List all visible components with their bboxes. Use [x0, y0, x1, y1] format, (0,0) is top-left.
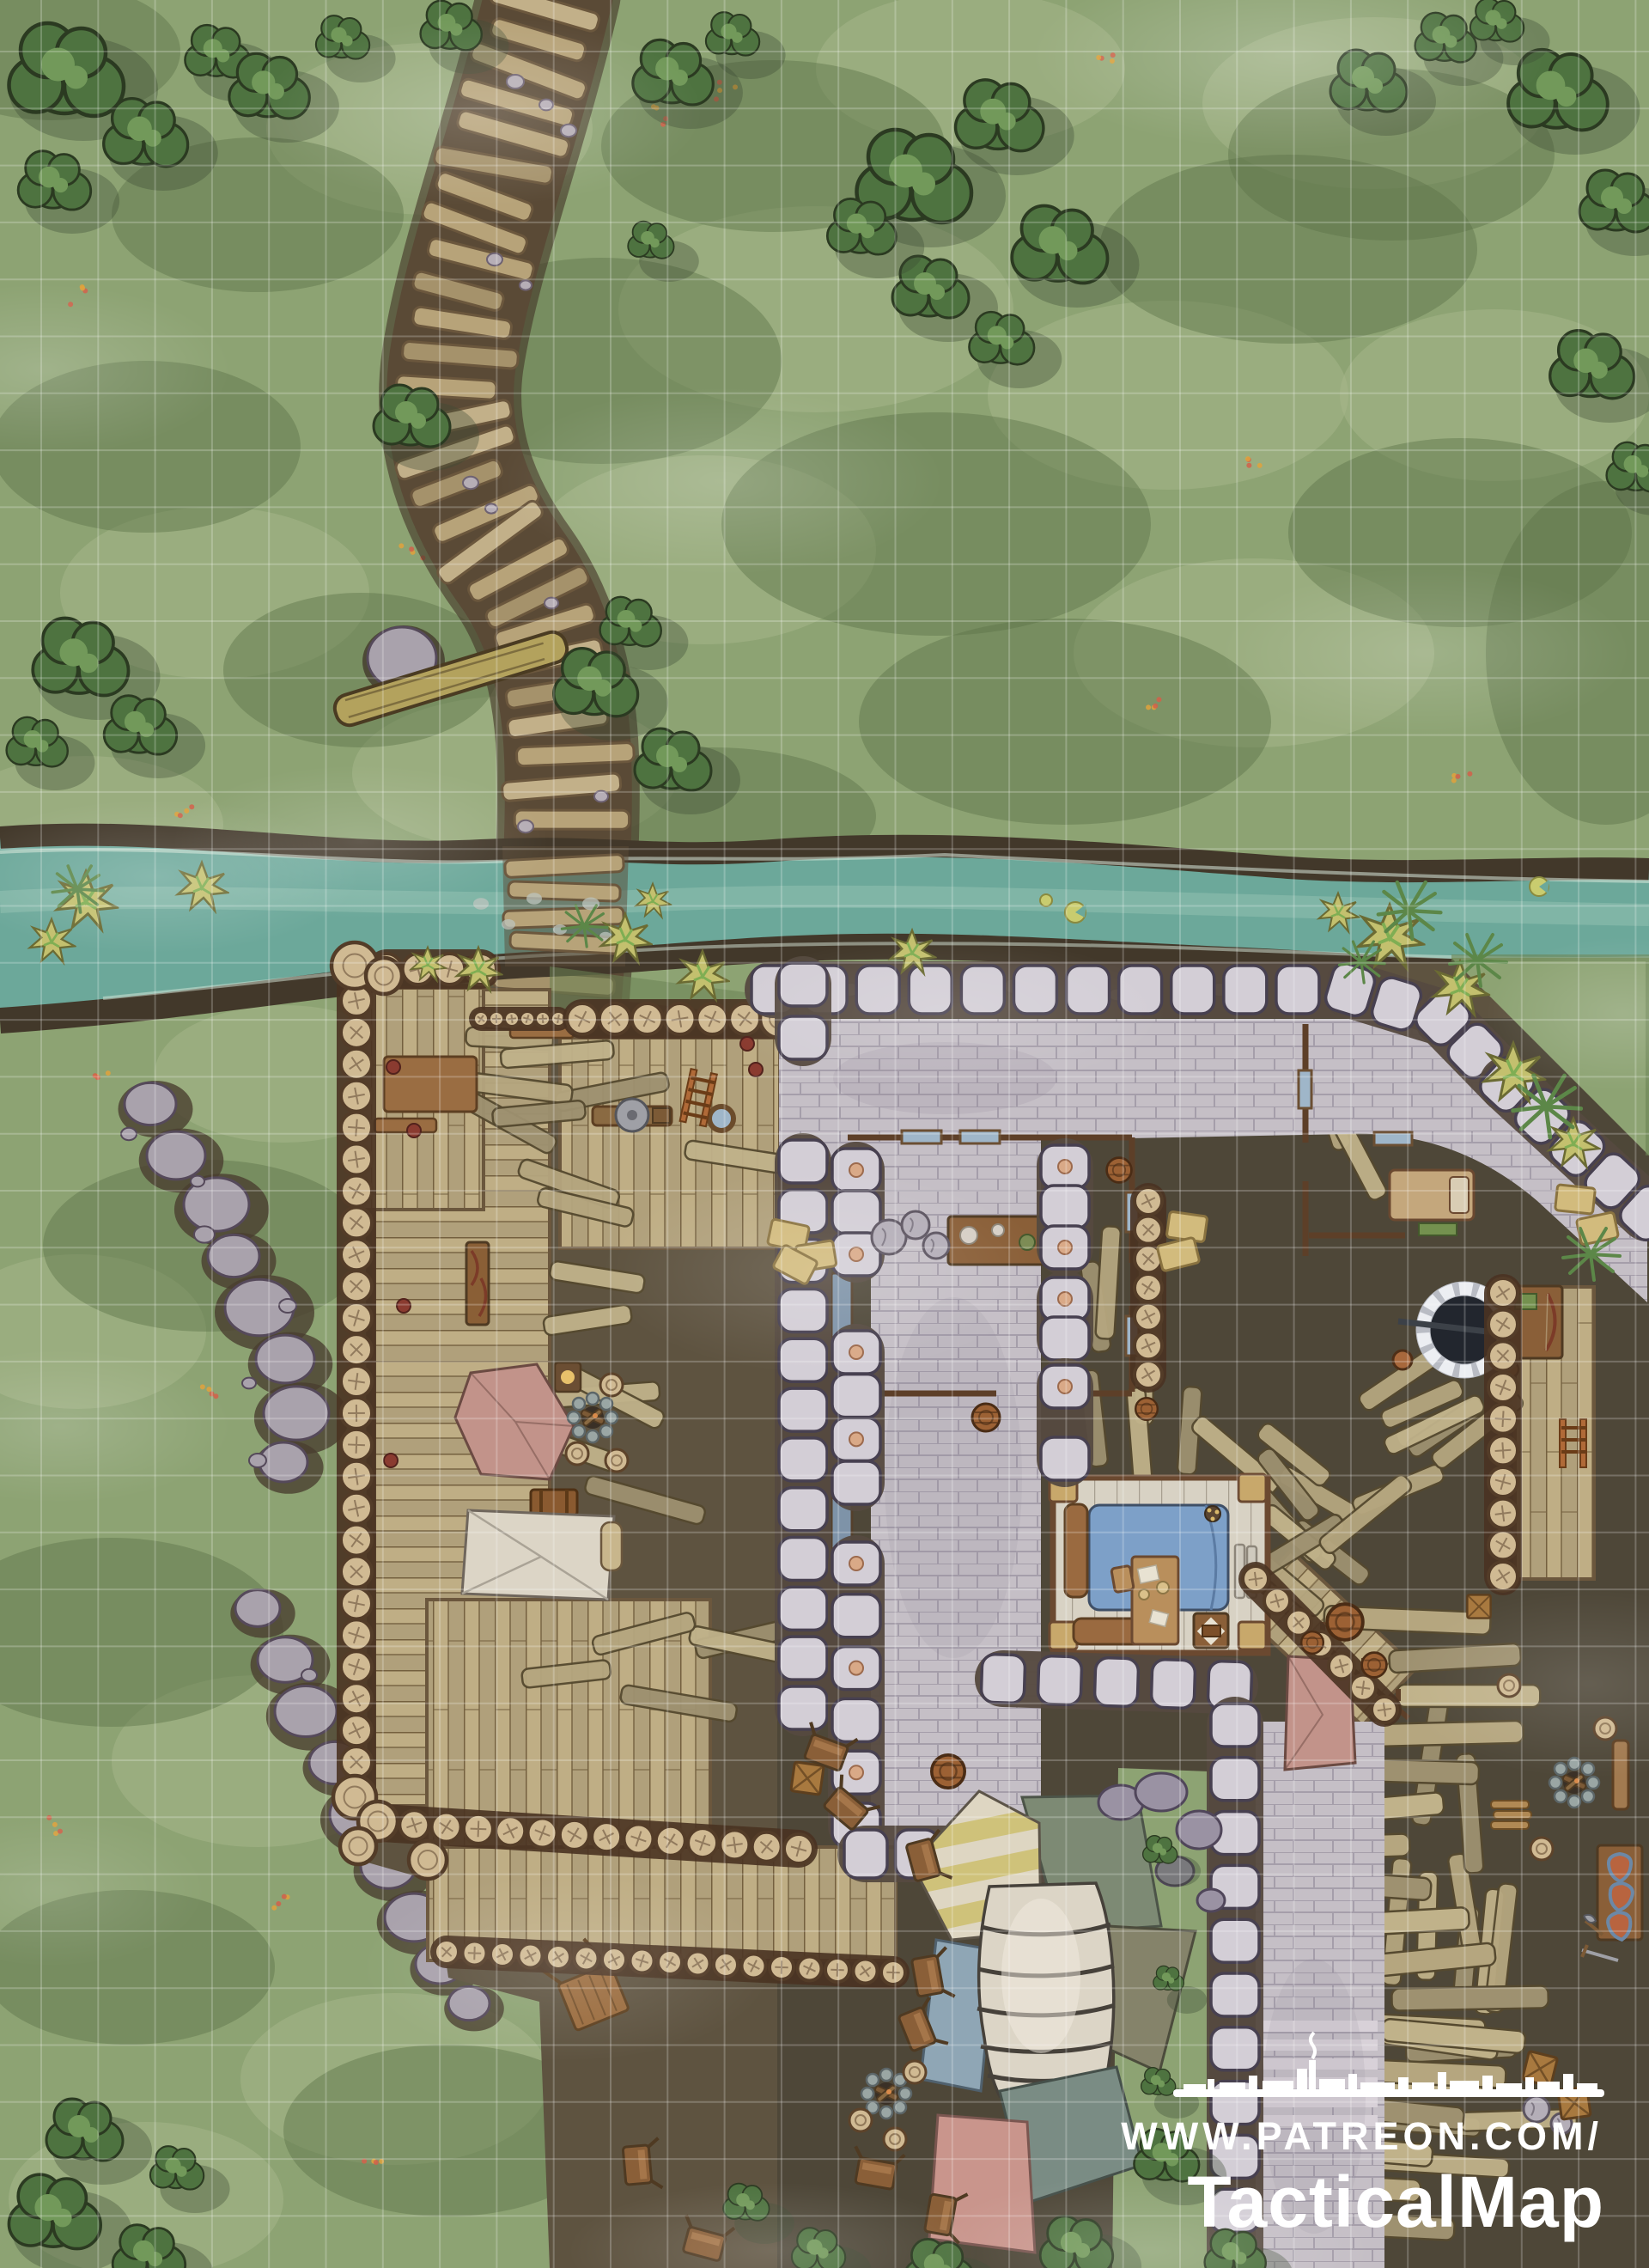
wildflower	[1146, 704, 1151, 710]
red-plant	[384, 1454, 398, 1467]
boulder	[208, 1235, 259, 1277]
bow-rack	[466, 1242, 489, 1325]
block-pin	[1058, 1380, 1072, 1393]
wall-block	[832, 1461, 880, 1504]
wall-block	[1171, 966, 1214, 1014]
block-pin	[849, 1765, 863, 1779]
couch	[1065, 1504, 1087, 1597]
wall-block	[779, 1637, 827, 1680]
wall-block	[779, 1686, 827, 1729]
wall-block	[779, 1538, 827, 1581]
skyline-building	[1319, 2079, 1345, 2091]
skyline-building	[1525, 2077, 1534, 2091]
boulder	[256, 1335, 314, 1383]
watermark-url: WWW.PATREON.COM/	[1121, 2114, 1603, 2158]
skyline-building	[1249, 2076, 1257, 2091]
stump	[605, 1449, 628, 1472]
wildflower	[409, 546, 414, 552]
red-plant	[407, 1124, 421, 1137]
mist-patch	[361, 1873, 773, 2062]
barrel	[1301, 1631, 1323, 1654]
camp-boulder	[1197, 1889, 1225, 1911]
block-pin	[849, 1557, 863, 1570]
wall-block	[1094, 1657, 1139, 1706]
officer-quarters	[1050, 1474, 1268, 1653]
wall-block	[832, 1594, 880, 1637]
mist-patch	[258, 17, 704, 206]
block-pin	[1058, 1160, 1072, 1174]
wall-block	[832, 1698, 880, 1741]
skyline-building	[1482, 2076, 1493, 2091]
skyline-building	[1297, 2069, 1307, 2091]
wall-block	[779, 1587, 827, 1630]
wall-block	[1211, 1704, 1259, 1747]
barrel	[1135, 1398, 1158, 1420]
wall-block	[981, 1654, 1025, 1703]
pebble	[301, 1669, 317, 1681]
barrel	[972, 1404, 1000, 1431]
mist-patch	[1220, 567, 1632, 739]
mist-patch	[721, 936, 1168, 1091]
barrel	[1327, 1604, 1363, 1640]
stepping-stone	[526, 893, 542, 905]
stump	[849, 2109, 872, 2131]
block-pin	[849, 1432, 863, 1446]
wall-block	[1041, 1437, 1089, 1480]
wildflower	[1153, 704, 1158, 709]
palisade-tower-log	[409, 1841, 447, 1879]
wall-block	[1211, 1973, 1259, 2016]
watermark-divider	[1173, 2089, 1604, 2097]
watermark-title: TacticalMap	[1187, 2161, 1604, 2242]
wall-block	[1211, 1919, 1259, 1962]
hay-bale	[1555, 1185, 1596, 1214]
stump	[904, 2061, 926, 2083]
pebble	[279, 1299, 296, 1313]
skyline-building	[1208, 2079, 1214, 2091]
stump	[566, 1442, 588, 1465]
wildflower	[1245, 456, 1250, 461]
lantern	[555, 1363, 581, 1392]
wall-block	[1037, 1655, 1082, 1704]
battle-map-stage: WWW.PATREON.COM/ TacticalMap	[0, 0, 1649, 2268]
stump	[1530, 1838, 1553, 1860]
wall-block	[779, 1388, 827, 1431]
red-plant	[386, 1060, 400, 1074]
pebble	[242, 1378, 256, 1389]
wildflower	[1455, 774, 1460, 779]
wildflower	[1246, 463, 1251, 468]
skyline-building	[1348, 2074, 1357, 2091]
stone	[487, 253, 502, 265]
wall-block	[1211, 2027, 1259, 2070]
side-table	[1194, 1613, 1228, 1648]
skyline-building	[1563, 2074, 1573, 2091]
wildflower	[399, 543, 404, 548]
water-basin	[709, 1107, 733, 1131]
stone	[520, 280, 532, 290]
scrub-patch	[859, 619, 1271, 825]
wall-block	[779, 1438, 827, 1481]
road-plank	[516, 742, 634, 766]
crate	[791, 1762, 824, 1795]
wildflower	[1467, 771, 1472, 777]
skyline-building	[1309, 2060, 1316, 2091]
stone	[545, 598, 558, 609]
boulder	[235, 1590, 280, 1627]
red-plant	[397, 1299, 411, 1313]
wall-block	[1211, 1758, 1259, 1801]
wildflower	[1257, 463, 1263, 468]
boulder	[264, 1387, 329, 1440]
pebble	[249, 1454, 266, 1467]
barrel	[1362, 1653, 1387, 1678]
wall-block	[779, 1488, 827, 1531]
red-plant	[749, 1063, 763, 1076]
wildflower	[374, 2160, 379, 2165]
wall-block	[1224, 966, 1267, 1014]
wall-block	[844, 1830, 887, 1878]
wildflower	[271, 1905, 277, 1911]
skyline-building	[1398, 2077, 1409, 2091]
wall-block	[1151, 1659, 1196, 1708]
stone	[485, 503, 497, 513]
boulder	[125, 1082, 176, 1125]
stepping-stone	[582, 898, 599, 911]
wall-block	[1041, 1186, 1089, 1228]
wildflower	[1156, 697, 1161, 702]
pavilion-tent	[977, 1883, 1115, 2096]
wall-block	[1041, 1317, 1089, 1360]
skyline-building	[1438, 2072, 1446, 2091]
wildflower	[1451, 778, 1457, 783]
palisade-tower-log	[340, 1828, 376, 1864]
barrel	[1107, 1158, 1132, 1183]
stepping-stone	[502, 919, 515, 930]
stone	[463, 477, 478, 489]
wildflower	[106, 1070, 111, 1076]
block-pin	[849, 1661, 863, 1675]
white-tent	[462, 1510, 622, 1600]
wildflower	[276, 1901, 281, 1906]
pebble	[191, 1176, 204, 1187]
wall-block	[1276, 966, 1319, 1014]
mist-patch	[172, 765, 550, 919]
tactical-battle-map: WWW.PATREON.COM/ TacticalMap	[0, 0, 1649, 2268]
firewood	[1491, 1801, 1531, 1829]
boulder	[275, 1686, 337, 1736]
wildflower	[282, 1894, 287, 1899]
loose-plank	[1391, 1985, 1549, 2010]
mist-patch	[498, 387, 945, 576]
wall-block	[832, 1375, 880, 1417]
